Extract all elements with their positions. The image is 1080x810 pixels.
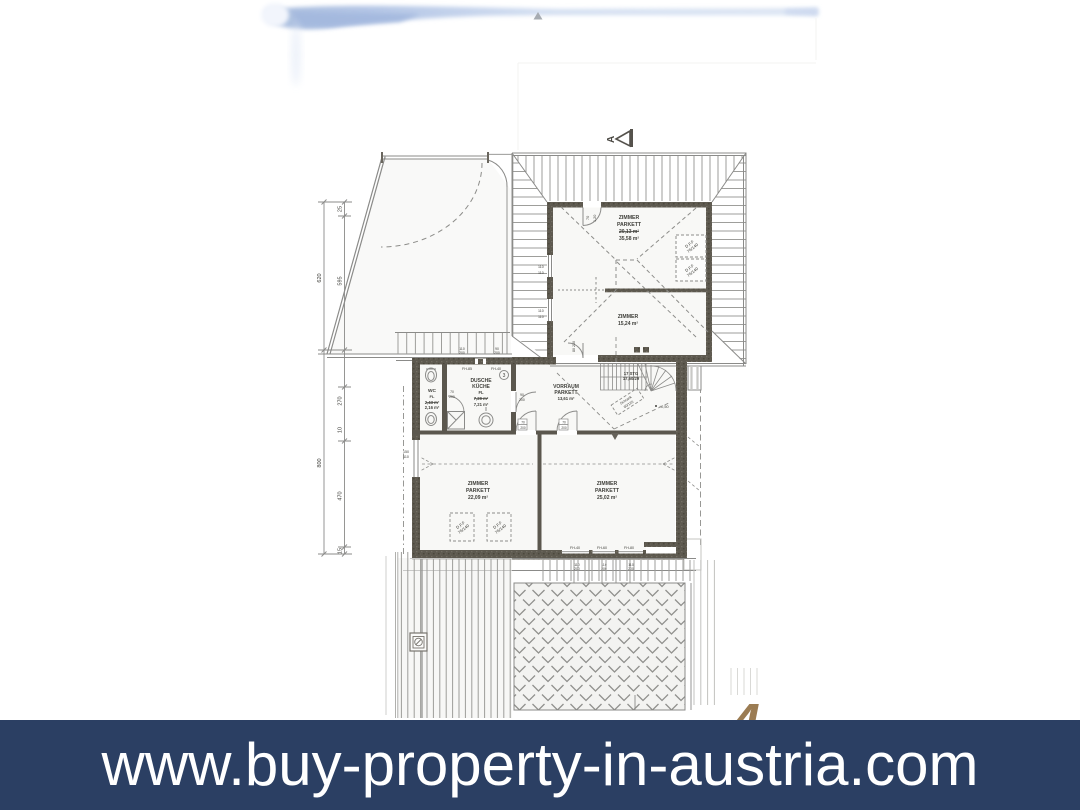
- svg-text:15: 15: [338, 548, 344, 554]
- svg-text:70: 70: [450, 390, 454, 394]
- svg-text:FL: FL: [478, 390, 484, 395]
- svg-text:110: 110: [538, 271, 544, 275]
- svg-text:620: 620: [317, 273, 323, 282]
- svg-text:110: 110: [403, 455, 409, 459]
- svg-text:25,02 m²: 25,02 m²: [597, 495, 617, 501]
- svg-text:17,60/29: 17,60/29: [623, 376, 640, 381]
- svg-text:200: 200: [519, 398, 525, 402]
- svg-text:800: 800: [317, 458, 323, 467]
- svg-text:270: 270: [338, 396, 344, 405]
- svg-text:FL: FL: [430, 394, 435, 399]
- svg-text:13,61 m²: 13,61 m²: [558, 396, 575, 401]
- svg-text:PARKETT: PARKETT: [466, 488, 491, 494]
- svg-text:70: 70: [586, 216, 590, 220]
- svg-text:KÜCHE: KÜCHE: [472, 383, 490, 390]
- svg-text:90: 90: [520, 393, 524, 397]
- svg-text:200: 200: [520, 426, 526, 430]
- svg-text:15,24 m²: 15,24 m²: [618, 321, 638, 327]
- svg-text:ZIMMER: ZIMMER: [468, 481, 489, 487]
- svg-text:10: 10: [338, 427, 344, 433]
- svg-text:200: 200: [459, 351, 465, 355]
- svg-text:35,58 m²: 35,58 m²: [619, 236, 639, 242]
- svg-text:2,16 m²: 2,16 m²: [425, 405, 440, 410]
- svg-text:150: 150: [403, 450, 409, 454]
- svg-text:ZIMMER: ZIMMER: [618, 314, 639, 320]
- svg-text:www.buy-property-in-austria.co: www.buy-property-in-austria.com: [101, 731, 979, 798]
- svg-text:110: 110: [538, 265, 544, 269]
- svg-text:20,13 m²: 20,13 m²: [619, 229, 639, 235]
- svg-text:ZIMMER: ZIMMER: [597, 481, 618, 487]
- svg-text:3: 3: [503, 373, 506, 379]
- svg-text:1.20: 1.20: [593, 215, 597, 222]
- svg-text:470: 470: [338, 491, 344, 500]
- svg-text:FH-60: FH-60: [597, 546, 607, 550]
- svg-text:110: 110: [538, 315, 544, 319]
- svg-text:200: 200: [449, 395, 455, 399]
- svg-text:A: A: [606, 136, 617, 143]
- svg-text:70: 70: [521, 421, 525, 425]
- svg-text:ZIMMER: ZIMMER: [619, 215, 640, 221]
- svg-text:FH-85: FH-85: [462, 367, 472, 371]
- svg-text:595: 595: [338, 276, 344, 285]
- svg-text:PARKETT: PARKETT: [595, 488, 620, 494]
- svg-text:200: 200: [494, 351, 500, 355]
- svg-text:110: 110: [538, 309, 544, 313]
- svg-text:PARKETT: PARKETT: [617, 222, 642, 228]
- svg-text:25: 25: [338, 206, 344, 212]
- svg-text:FH-40: FH-40: [570, 546, 580, 550]
- svg-text:FH-40: FH-40: [491, 367, 501, 371]
- svg-text:7,21 m²: 7,21 m²: [474, 402, 489, 407]
- svg-text:200: 200: [561, 426, 567, 430]
- svg-text:70: 70: [562, 421, 566, 425]
- svg-text:22,09 m²: 22,09 m²: [468, 495, 488, 501]
- svg-text:80 230: 80 230: [572, 341, 576, 352]
- svg-text:FH-80: FH-80: [624, 546, 634, 550]
